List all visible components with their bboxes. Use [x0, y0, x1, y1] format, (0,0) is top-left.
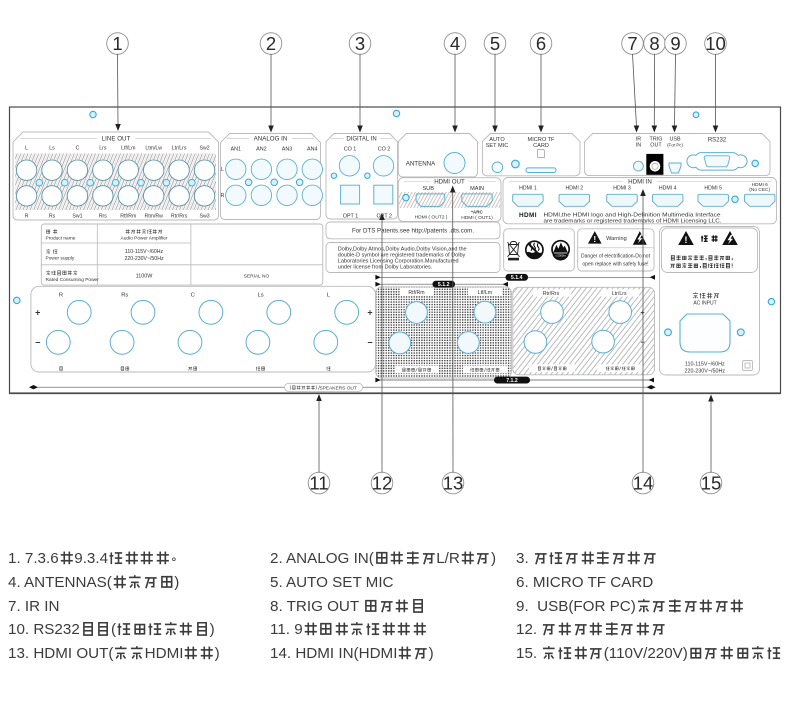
svg-text:11: 11 [309, 473, 328, 494]
svg-text:2: 2 [266, 33, 276, 54]
svg-text:For DTS Patents.see http://pat: For DTS Patents.see http://patents .dts.… [352, 228, 474, 235]
svg-text:HDMI ( OUT2 ): HDMI ( OUT2 ) [415, 214, 448, 220]
svg-text:110-115V~/60Hz: 110-115V~/60Hz [125, 249, 164, 255]
svg-text:Ls: Ls [258, 293, 264, 299]
svg-text:3: 3 [355, 33, 365, 54]
svg-text:Ltr/Lrs: Ltr/Lrs [612, 291, 627, 297]
svg-text:Sw3: Sw3 [199, 213, 209, 219]
svg-text:4: 4 [450, 33, 460, 54]
svg-text:HDMI ( OUT1): HDMI ( OUT1) [461, 215, 493, 221]
svg-text:10: 10 [705, 33, 726, 54]
svg-text:15: 15 [701, 473, 722, 494]
svg-text:1100W: 1100W [136, 274, 154, 280]
svg-text:HDMI 1: HDMI 1 [519, 185, 537, 191]
svg-text:Rrs: Rrs [99, 213, 107, 219]
svg-text:CO 1: CO 1 [344, 147, 357, 153]
svg-text:LINE OUT: LINE OUT [102, 136, 131, 143]
svg-text:110-115V~/60Hz: 110-115V~/60Hz [685, 361, 725, 367]
svg-text:HDMI 5: HDMI 5 [704, 185, 722, 191]
svg-text:under license from Dolby Labor: under license from Dolby Laboratories. [338, 264, 433, 270]
svg-text:+: + [35, 307, 40, 317]
svg-text:AN1: AN1 [231, 147, 242, 153]
svg-text:Product name: Product name [46, 236, 76, 242]
svg-text:*ARC: *ARC [471, 210, 483, 215]
svg-text:L: L [221, 167, 224, 173]
svg-text:−: − [367, 337, 372, 347]
svg-text:12: 12 [372, 473, 393, 494]
svg-text:HDMI 6: HDMI 6 [752, 182, 769, 188]
svg-text:OUT: OUT [650, 143, 662, 149]
svg-text:HDMI 4: HDMI 4 [659, 185, 677, 191]
svg-text:R: R [221, 193, 225, 199]
svg-text:are trademarks or registered t: are trademarks or registered trademarks … [544, 218, 722, 224]
svg-text:7.1.2: 7.1.2 [506, 378, 518, 384]
svg-text:Rtr/Rrs: Rtr/Rrs [543, 291, 560, 297]
svg-text:5: 5 [490, 33, 500, 54]
svg-text:Power supply: Power supply [46, 256, 75, 262]
svg-text:Ltf/Lm: Ltf/Lm [478, 290, 492, 296]
svg-text:RS232: RS232 [708, 137, 727, 143]
svg-text:C: C [191, 293, 195, 299]
svg-text:ANALOG IN: ANALOG IN [254, 136, 288, 143]
svg-text:220-230V~/50Hz: 220-230V~/50Hz [124, 256, 163, 262]
svg-text:Audio Power Amplifier: Audio Power Amplifier [121, 236, 168, 242]
svg-text:MAIN: MAIN [470, 186, 484, 192]
svg-text:ANTENNA: ANTENNA [406, 161, 436, 168]
svg-text:9: 9 [670, 33, 680, 54]
svg-text:(-2000m: (-2000m [556, 253, 567, 257]
svg-text:(For Pc): (For Pc) [667, 142, 683, 147]
svg-text:Sw1: Sw1 [72, 213, 82, 219]
svg-text:Rtf/Rm: Rtf/Rm [120, 213, 136, 219]
svg-text:SET MIC: SET MIC [486, 143, 509, 149]
svg-text:13: 13 [443, 473, 464, 494]
svg-text:−: − [640, 340, 644, 347]
svg-text:6: 6 [536, 33, 546, 54]
svg-text:5.1.2: 5.1.2 [438, 282, 450, 288]
svg-text:Rtr/Rrs: Rtr/Rrs [171, 213, 188, 219]
svg-text:Rated Consuming Power: Rated Consuming Power [46, 277, 100, 283]
svg-text:AC INPUT: AC INPUT [693, 301, 716, 307]
svg-text:L: L [25, 146, 28, 152]
svg-text:+: + [640, 310, 644, 317]
svg-text:OPT 1: OPT 1 [343, 213, 358, 219]
svg-text:!: ! [684, 235, 687, 246]
svg-text:SPEAKERS OUT: SPEAKERS OUT [320, 385, 357, 391]
svg-text:AN2: AN2 [256, 147, 267, 153]
svg-text:SUB: SUB [422, 186, 434, 192]
svg-text:HDMI IN: HDMI IN [628, 178, 652, 185]
svg-text:Rs: Rs [121, 293, 128, 299]
svg-text:!: ! [593, 234, 596, 244]
svg-text:HDMI OUT: HDMI OUT [434, 178, 465, 185]
svg-text:HDMI: HDMI [519, 212, 537, 219]
svg-text:HDMI 3: HDMI 3 [613, 185, 631, 191]
svg-text:Lrs: Lrs [99, 146, 107, 152]
svg-text:CO 2: CO 2 [378, 147, 391, 153]
svg-text:1: 1 [112, 33, 122, 54]
svg-text:8: 8 [649, 33, 659, 54]
svg-text:CARD: CARD [533, 143, 549, 149]
svg-text:R: R [59, 293, 63, 299]
svg-text:−: − [35, 337, 40, 347]
svg-text:OPT 2: OPT 2 [377, 213, 392, 219]
svg-text:open replace with safety fuse!: open replace with safety fuse! [582, 261, 648, 267]
svg-text:DIGITAL IN: DIGITAL IN [346, 137, 376, 143]
svg-text:7: 7 [627, 33, 637, 54]
svg-text:Rtf/Rm: Rtf/Rm [408, 290, 424, 296]
svg-text:C: C [76, 146, 80, 152]
svg-text:R: R [25, 213, 29, 219]
svg-text:AN4: AN4 [307, 147, 318, 153]
svg-text:+: + [367, 307, 372, 317]
svg-text:Ls: Ls [49, 146, 55, 152]
svg-text:SERIAL NO: SERIAL NO [244, 274, 270, 280]
svg-text:Danger of electrification-Do n: Danger of electrification-Do not [581, 254, 651, 260]
svg-text:Warning: Warning [606, 236, 627, 242]
svg-text:Sw2: Sw2 [199, 146, 209, 152]
svg-text:Rs: Rs [49, 213, 56, 219]
svg-text:Ltm/Lw: Ltm/Lw [145, 146, 162, 152]
svg-text:(No CEC): (No CEC) [749, 187, 770, 193]
svg-text:HDMI 2: HDMI 2 [566, 185, 584, 191]
svg-text:5.1.4: 5.1.4 [511, 275, 523, 281]
svg-text:Ltr/Lrs: Ltr/Lrs [172, 146, 187, 152]
svg-text:220-230V~/50Hz: 220-230V~/50Hz [684, 368, 725, 374]
svg-text:Rtm/Rw: Rtm/Rw [144, 213, 163, 219]
svg-text:AN3: AN3 [282, 147, 293, 153]
svg-text:Ltf/Lm: Ltf/Lm [121, 146, 135, 152]
svg-text:14: 14 [633, 473, 654, 494]
svg-text:IN: IN [636, 143, 641, 149]
